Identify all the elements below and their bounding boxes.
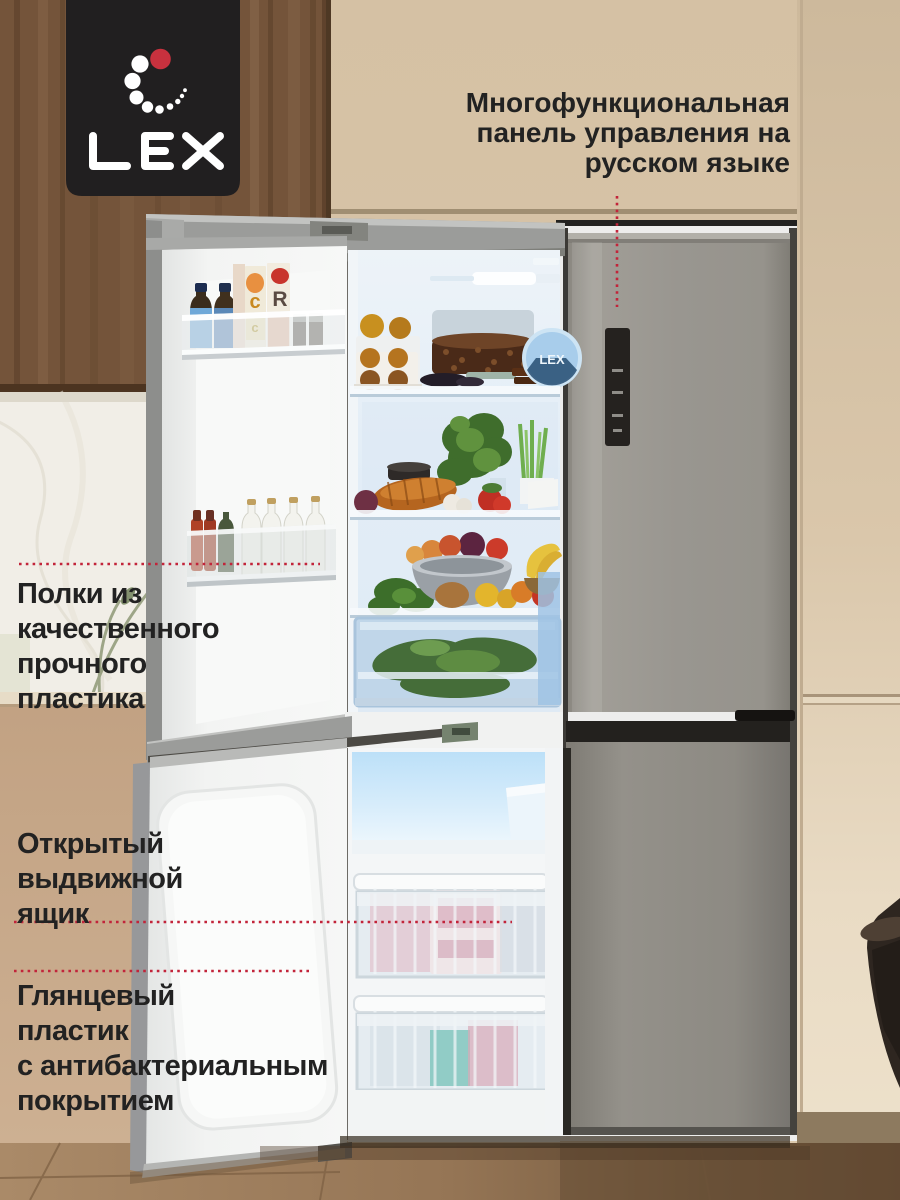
svg-text:c: c [249, 291, 260, 313]
svg-text:R: R [272, 288, 287, 311]
svg-text:LEX: LEX [539, 352, 565, 367]
